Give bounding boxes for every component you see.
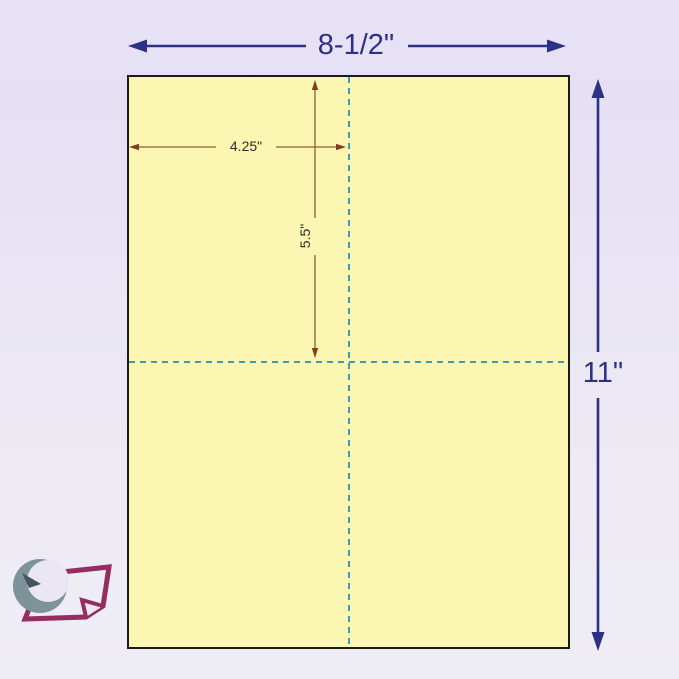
horizontal-perforation-line [129, 361, 568, 363]
product-diagram: 8-1/2" 11" 4.25" 5.5" [0, 0, 679, 679]
sheet-height-label: 11" [578, 359, 628, 388]
logo-clock-crescent [13, 559, 69, 613]
half-height-label: 5.5" [298, 211, 314, 261]
paper-sheet [127, 75, 570, 649]
sheet-width-label: 8-1/2" [306, 31, 406, 60]
paper-clock-logo-icon [10, 554, 116, 638]
half-width-label: 4.25" [218, 139, 274, 153]
